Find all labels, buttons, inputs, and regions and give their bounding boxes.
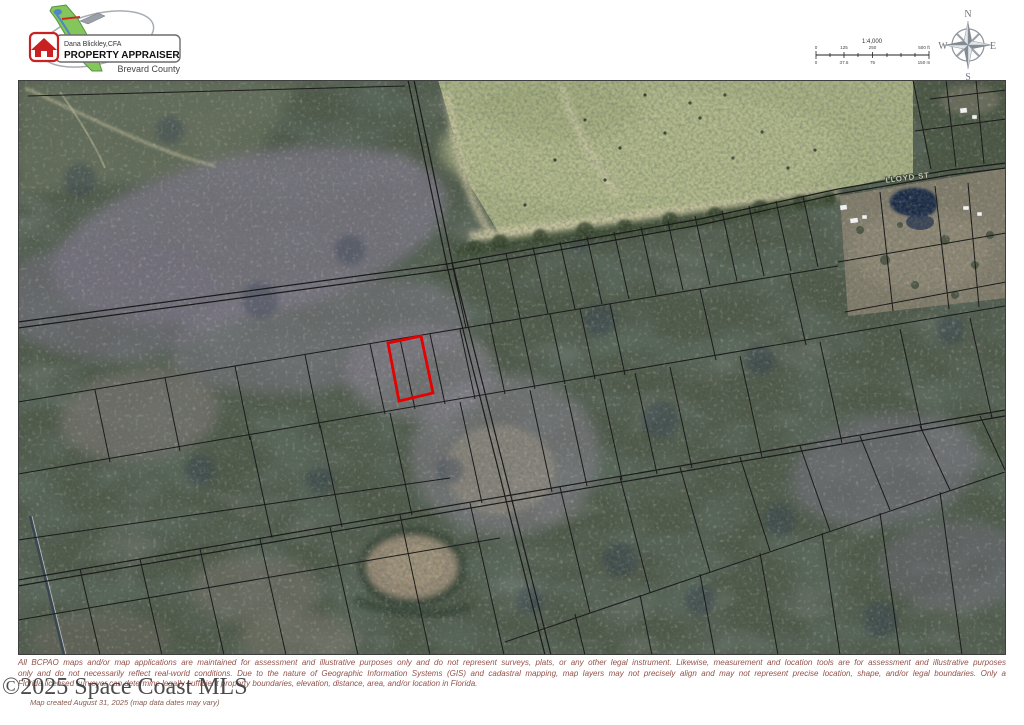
map-canvas: LLOYD ST: [18, 80, 1006, 655]
compass-w: W: [938, 41, 948, 52]
scale-m-150: 150 m: [918, 60, 931, 65]
scale-ft-0: 0: [815, 45, 818, 50]
aerial-map: LLOYD ST: [18, 80, 1006, 655]
office-title: PROPERTY APPRAISER: [64, 50, 180, 61]
scale-ft-125: 125: [840, 45, 848, 50]
grain-light: [18, 80, 1006, 655]
scale-bar: 1:4,000 0 125 250 500 ft 0 37.5 75 150 m: [810, 34, 935, 72]
disclaimer-line-1: All BCPAO maps and/or map applications a…: [18, 658, 1006, 669]
compass-star-icon: [944, 21, 992, 69]
disclaimer-line-3: Florida licensed surveyor can determine …: [18, 679, 1006, 690]
disclaimer-block: All BCPAO maps and/or map applications a…: [18, 658, 1006, 690]
scale-m-37: 37.5: [840, 60, 849, 65]
house-door-icon: [41, 51, 47, 57]
compass-rose: N E S W: [938, 8, 998, 82]
disclaimer-line-2: only and do not necessarily reflect real…: [18, 669, 1006, 680]
scale-m-0: 0: [815, 60, 818, 65]
page: { "header": { "logo": { "name_line": "Da…: [0, 0, 1024, 725]
compass-e: E: [990, 41, 996, 52]
scale-ft-250: 250: [869, 45, 877, 50]
appraiser-name: Dana Blickley,CFA: [64, 41, 122, 48]
scale-m-75: 75: [870, 60, 876, 65]
county-label: Brevard County: [117, 64, 180, 74]
bcpao-logo: Dana Blickley,CFA PROPERTY APPRAISER Bre…: [22, 4, 192, 76]
scale-ft-500: 500 ft: [918, 45, 930, 50]
compass-n: N: [964, 9, 971, 20]
map-created-note: Map created August 31, 2025 (map data da…: [30, 698, 219, 707]
lagoon-icon: [54, 9, 62, 15]
